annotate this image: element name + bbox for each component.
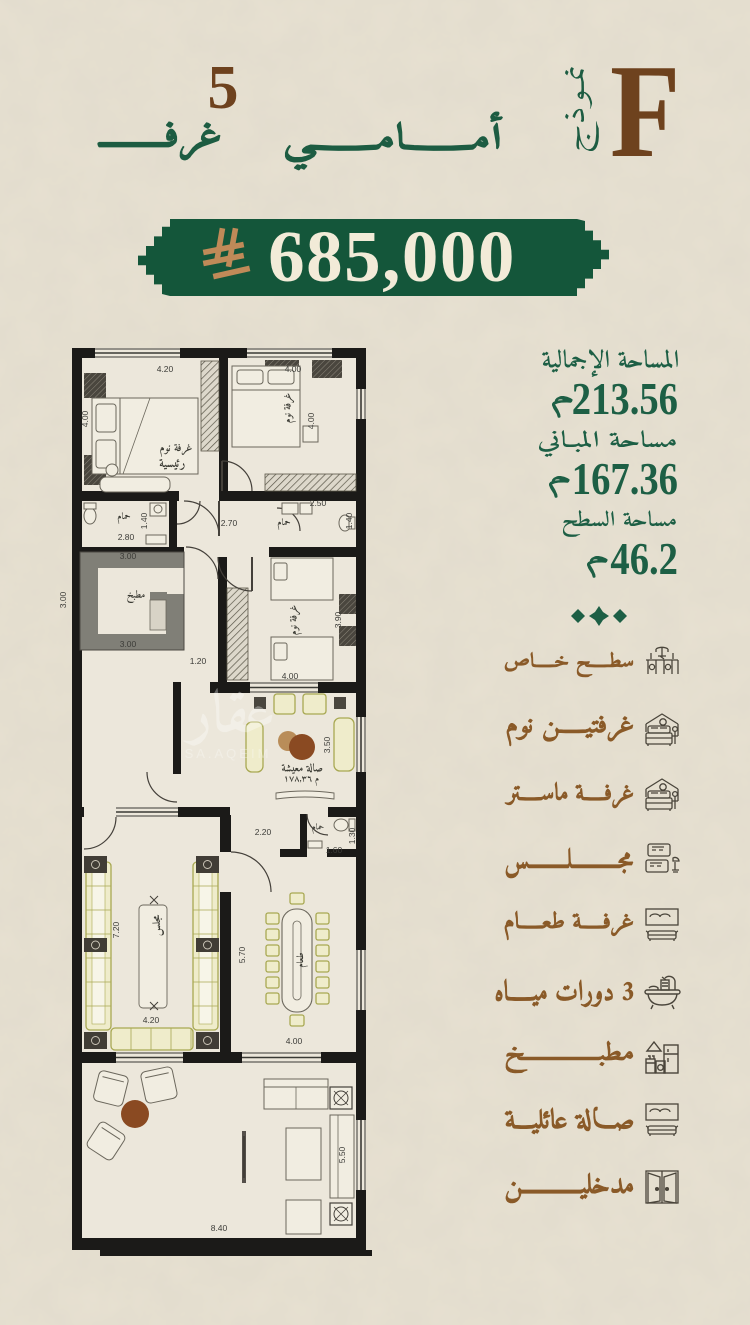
svg-text:213.56: 213.56 (572, 374, 678, 425)
svg-text:4.00: 4.00 (286, 1036, 303, 1046)
svg-text:1.20: 1.20 (190, 656, 207, 666)
svg-text:2.80: 2.80 (118, 532, 135, 542)
svg-text:5.50: 5.50 (337, 1146, 347, 1163)
svg-text:5.70: 5.70 (237, 946, 247, 963)
svg-text:2.50: 2.50 (310, 498, 327, 508)
svg-text:1.40: 1.40 (139, 512, 149, 529)
svg-text:1.30: 1.30 (347, 827, 357, 844)
svg-text:4.00: 4.00 (282, 671, 299, 681)
svg-text:4.20: 4.20 (157, 364, 174, 374)
svg-text:4.00: 4.00 (285, 364, 302, 374)
svg-text:2.70: 2.70 (221, 518, 238, 528)
svg-text:1.40: 1.40 (344, 512, 354, 529)
svg-text:3.50: 3.50 (322, 736, 332, 753)
svg-text:46.2: 46.2 (610, 534, 678, 585)
svg-text:4.20: 4.20 (143, 1015, 160, 1025)
svg-text:SA.AQEIM: SA.AQEIM (185, 746, 272, 761)
svg-text:1.60: 1.60 (326, 845, 343, 855)
svg-text:F: F (610, 38, 680, 186)
svg-text:2.20: 2.20 (255, 827, 272, 837)
svg-text:3.90: 3.90 (333, 611, 343, 628)
svg-text:685,000: 685,000 (268, 216, 516, 297)
svg-text:3.00: 3.00 (58, 591, 68, 608)
svg-text:3.00: 3.00 (120, 639, 137, 649)
svg-text:167.36: 167.36 (572, 454, 678, 505)
svg-text:5: 5 (208, 54, 239, 122)
svg-text:8.40: 8.40 (211, 1223, 228, 1233)
svg-text:4.00: 4.00 (80, 410, 90, 427)
svg-text:4.00: 4.00 (306, 412, 316, 429)
svg-text:3.00: 3.00 (120, 551, 137, 561)
svg-text:7.20: 7.20 (111, 921, 121, 938)
